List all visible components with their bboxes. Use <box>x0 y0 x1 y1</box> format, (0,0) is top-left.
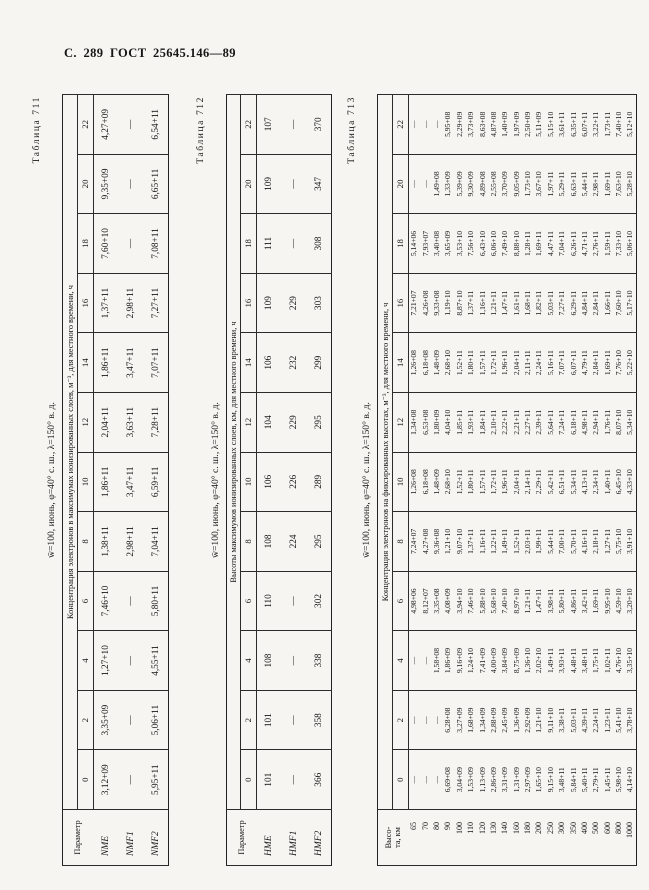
value-cell: 1,52+11 <box>454 333 465 393</box>
table-row: 5002,79+112,24+111,75+111,69+112,18+112,… <box>591 95 602 866</box>
time-header-cell: 14 <box>393 333 409 393</box>
value-cell: 1,86+09 <box>443 631 454 691</box>
value-cell: 5,16+11 <box>545 333 556 393</box>
value-cell: 5,29+11 <box>557 154 568 214</box>
value-cell: 6,54+11 <box>144 95 169 155</box>
value-cell: 3,31+09 <box>500 750 511 810</box>
value-cell: 1,57+11 <box>477 452 488 512</box>
value-cell: 7,60+10 <box>614 273 625 333</box>
value-cell: — <box>282 571 307 631</box>
value-cell: 3,35+10 <box>625 631 636 691</box>
value-cell: 1,68+09 <box>465 690 476 750</box>
value-cell: 5,70+11 <box>568 512 579 572</box>
value-cell: 1,65+10 <box>534 750 545 810</box>
value-cell: 2,39+11 <box>534 392 545 452</box>
value-cell: 101 <box>257 750 282 810</box>
value-cell: 5,03+11 <box>568 690 579 750</box>
value-cell: — <box>119 631 144 691</box>
value-cell: 2,10+11 <box>488 392 499 452</box>
value-cell: — <box>431 95 442 155</box>
value-cell: 5,34+10 <box>625 392 636 452</box>
value-cell: 5,41+10 <box>614 690 625 750</box>
row-label: 500 <box>591 810 602 866</box>
time-header-cell: 0 <box>78 750 94 810</box>
value-cell: 2,04+11 <box>511 333 522 393</box>
value-cell: 1,49+11 <box>545 631 556 691</box>
table-711-caption: Таблица 711 <box>32 96 42 866</box>
value-cell: 8,97+10 <box>511 571 522 631</box>
value-cell: 3,48+11 <box>557 750 568 810</box>
value-cell: 370 <box>307 95 332 155</box>
value-cell: 4,79+11 <box>579 333 590 393</box>
value-cell: — <box>282 95 307 155</box>
value-cell: 2,98+11 <box>119 273 144 333</box>
table-712-rotated-band: Таблица 712 w̄=100, июнь, φ=40° с. ш., λ… <box>196 94 332 866</box>
value-cell: 1,27+11 <box>602 512 613 572</box>
value-cell: 7,27+11 <box>144 273 169 333</box>
value-cell: 7,63+10 <box>614 154 625 214</box>
time-header-cell: 16 <box>393 273 409 333</box>
value-cell: 5,28+10 <box>625 154 636 214</box>
value-cell: 3,78+10 <box>625 690 636 750</box>
value-cell: 6,07+11 <box>579 95 590 155</box>
value-cell: 5,03+11 <box>545 273 556 333</box>
value-cell: 1,22+11 <box>488 512 499 572</box>
table-row: NME3,12+093,35+091,27+107,46+101,38+111,… <box>94 95 119 866</box>
row-label: 110 <box>465 810 476 866</box>
value-cell: 1,16+11 <box>477 512 488 572</box>
value-cell: — <box>282 750 307 810</box>
value-cell: 2,88+09 <box>488 690 499 750</box>
table-712-title: w̄=100, июнь, φ=40° с. ш., λ=150° в. д. <box>210 94 221 866</box>
value-cell: 3,84+09 <box>500 631 511 691</box>
value-cell: — <box>409 750 420 810</box>
value-cell: 2,29+11 <box>534 452 545 512</box>
value-cell: 7,60+10 <box>94 214 119 274</box>
time-header-cell: 4 <box>393 631 409 691</box>
row-label: 100 <box>454 810 465 866</box>
value-cell: 8,75+09 <box>511 631 522 691</box>
value-cell: 1,73+11 <box>602 95 613 155</box>
time-header-cell: 18 <box>241 214 257 274</box>
value-cell: 3,65+09 <box>443 214 454 274</box>
value-cell: 1,72+11 <box>488 452 499 512</box>
value-cell: 7,27+11 <box>557 273 568 333</box>
time-header-cell: 22 <box>393 95 409 155</box>
value-cell: 9,07+10 <box>454 512 465 572</box>
value-cell: 1,69+11 <box>534 214 545 274</box>
value-cell: — <box>119 214 144 274</box>
value-cell: 289 <box>307 452 332 512</box>
value-cell: 1,37+11 <box>465 273 476 333</box>
time-header-cell: 14 <box>241 333 257 393</box>
time-header-cell: 16 <box>78 273 94 333</box>
row-label: 300 <box>557 810 568 866</box>
value-cell: 5,40+11 <box>579 750 590 810</box>
row-label: NMF2 <box>144 810 169 866</box>
value-cell: 1,73+10 <box>522 154 533 214</box>
row-label: 70 <box>420 810 431 866</box>
value-cell: 6,29+11 <box>568 273 579 333</box>
value-cell: — <box>119 95 144 155</box>
table-row: 1201,13+091,34+097,41+095,88+101,16+111,… <box>477 95 488 866</box>
value-cell: 4,39+11 <box>579 690 590 750</box>
value-cell: 1,58+08 <box>431 631 442 691</box>
value-cell: 7,07+11 <box>144 333 169 393</box>
stub-header: Параметр <box>227 810 257 866</box>
value-cell: 6,59+11 <box>144 452 169 512</box>
table-row: 2001,65+101,21+102,02+101,47+111,99+112,… <box>534 95 545 866</box>
value-cell: 6,45+10 <box>614 452 625 512</box>
row-label: 140 <box>500 810 511 866</box>
value-cell: 2,27+11 <box>522 392 533 452</box>
value-cell: 8,88+10 <box>511 214 522 274</box>
value-cell: — <box>282 214 307 274</box>
value-cell: 9,05+09 <box>511 154 522 214</box>
value-cell: 1,13+09 <box>477 750 488 810</box>
value-cell: 109 <box>257 273 282 333</box>
time-header-cell: 8 <box>78 512 94 572</box>
value-cell: 7,76+10 <box>614 333 625 393</box>
value-cell: 229 <box>282 273 307 333</box>
value-cell: 9,35+09 <box>94 154 119 214</box>
value-cell: 9,33+08 <box>431 273 442 333</box>
value-cell: 3,47+11 <box>119 452 144 512</box>
table-row: 1101,53+091,68+091,24+107,46+101,37+111,… <box>465 95 476 866</box>
value-cell: 8,63+08 <box>477 95 488 155</box>
stub-header: Параметр <box>63 810 94 866</box>
value-cell: 101 <box>257 690 282 750</box>
value-cell: 6,43+10 <box>477 214 488 274</box>
value-cell: 3,12+09 <box>94 750 119 810</box>
row-label: 800 <box>614 810 625 866</box>
row-label: 65 <box>409 810 420 866</box>
row-label: 160 <box>511 810 522 866</box>
value-cell: — <box>431 750 442 810</box>
value-cell: 4,08+09 <box>443 571 454 631</box>
span-header: Концентрация электронов в максимумах ион… <box>63 95 78 810</box>
value-cell: — <box>282 690 307 750</box>
value-cell: 110 <box>257 571 282 631</box>
value-cell: 1,31+09 <box>511 750 522 810</box>
table-row: 1601,31+091,36+098,75+098,97+101,52+112,… <box>511 95 522 866</box>
value-cell: 4,13+11 <box>579 452 590 512</box>
value-cell: 3,53+10 <box>454 214 465 274</box>
time-header-cell: 6 <box>241 571 257 631</box>
table-row: 6001,45+111,23+111,02+119,95+101,27+111,… <box>602 95 613 866</box>
value-cell: 9,15+10 <box>545 750 556 810</box>
value-cell: 3,93+11 <box>557 631 568 691</box>
value-cell: 1,26+08 <box>409 333 420 393</box>
row-label: 1000 <box>625 810 636 866</box>
value-cell: 2,29+09 <box>454 95 465 155</box>
value-cell: 2,94+11 <box>591 392 602 452</box>
value-cell: 1,86+11 <box>94 333 119 393</box>
table-row: 1802,97+092,92+091,36+101,21+112,03+112,… <box>522 95 533 866</box>
value-cell: 232 <box>282 333 307 393</box>
value-cell: 9,95+10 <box>602 571 613 631</box>
value-cell: 106 <box>257 333 282 393</box>
table-row: 70———8,12+074,27+086,18+086,53+086,18+08… <box>420 95 431 866</box>
table-712: ПараметрВысоты максимумов ионизированных… <box>226 94 332 866</box>
value-cell: 5,17+10 <box>625 273 636 333</box>
value-cell: 1,21+11 <box>488 273 499 333</box>
table-row: HMF2366358338302295289295299303308347370 <box>307 95 332 866</box>
value-cell: 1,36+10 <box>522 631 533 691</box>
value-cell: 6,26+11 <box>568 214 579 274</box>
value-cell: 338 <box>307 631 332 691</box>
value-cell: 5,84+11 <box>568 750 579 810</box>
value-cell: 4,27+08 <box>420 512 431 572</box>
value-cell: 5,95+08 <box>443 95 454 155</box>
value-cell: 4,26+08 <box>420 273 431 333</box>
value-cell: 308 <box>307 214 332 274</box>
value-cell: 7,28+11 <box>144 392 169 452</box>
value-cell: 7,08+11 <box>144 214 169 274</box>
value-cell: 4,76+10 <box>614 631 625 691</box>
value-cell: — <box>282 631 307 691</box>
value-cell: 295 <box>307 392 332 452</box>
value-cell: 2,04+11 <box>94 392 119 452</box>
value-cell: — <box>409 631 420 691</box>
value-cell: 5,44+11 <box>545 512 556 572</box>
value-cell: 6,18+08 <box>420 452 431 512</box>
value-cell: 3,20+10 <box>625 571 636 631</box>
value-cell: 226 <box>282 452 307 512</box>
value-cell: 1,97+09 <box>511 95 522 155</box>
value-cell: 1,19+10 <box>443 273 454 333</box>
time-header-cell: 12 <box>241 392 257 452</box>
value-cell: 5,22+10 <box>625 333 636 393</box>
value-cell: 3,38+11 <box>557 690 568 750</box>
value-cell: 107 <box>257 95 282 155</box>
table-row: 906,69+086,28+081,86+094,08+091,21+102,6… <box>443 95 454 866</box>
value-cell: 1,40+11 <box>602 452 613 512</box>
value-cell: — <box>420 631 431 691</box>
value-cell: 4,14+10 <box>625 750 636 810</box>
value-cell: 1,96+11 <box>500 452 511 512</box>
value-cell: 4,55+11 <box>144 631 169 691</box>
time-header-cell: 10 <box>393 452 409 512</box>
value-cell: 7,49+10 <box>500 214 511 274</box>
row-label: 250 <box>545 810 556 866</box>
value-cell: 4,00+09 <box>488 631 499 691</box>
time-header-cell: 4 <box>78 631 94 691</box>
value-cell: 4,48+11 <box>568 631 579 691</box>
value-cell: 2,18+11 <box>591 512 602 572</box>
value-cell: 1,02+11 <box>602 631 613 691</box>
value-cell: — <box>409 154 420 214</box>
value-cell: 1,53+09 <box>465 750 476 810</box>
span-header: Концентрация электронов на фиксированных… <box>378 95 393 810</box>
row-label: HME <box>257 810 282 866</box>
value-cell: 4,98+11 <box>579 392 590 452</box>
value-cell: 1,97+11 <box>545 154 556 214</box>
value-cell: — <box>409 690 420 750</box>
value-cell: 8,87+10 <box>454 273 465 333</box>
table-711: ПараметрКонцентрация электронов в максим… <box>62 94 169 866</box>
value-cell: 7,40+10 <box>500 571 511 631</box>
time-header-cell: 22 <box>241 95 257 155</box>
row-label: NMF1 <box>119 810 144 866</box>
value-cell: 1,27+10 <box>94 631 119 691</box>
value-cell: 6,18+11 <box>568 392 579 452</box>
value-cell: 3,70+09 <box>500 154 511 214</box>
value-cell: 4,27+09 <box>94 95 119 155</box>
value-cell: 4,47+11 <box>545 214 556 274</box>
value-cell: 5,95+11 <box>144 750 169 810</box>
value-cell: 358 <box>307 690 332 750</box>
value-cell: 5,42+11 <box>545 452 556 512</box>
row-label: 350 <box>568 810 579 866</box>
value-cell: 1,34+09 <box>477 690 488 750</box>
value-cell: 6,18+08 <box>420 333 431 393</box>
scanned-page: С. 289 ГОСТ 25645.146—89 Таблица 711 w̄=… <box>0 0 649 890</box>
value-cell: 9,36+08 <box>431 512 442 572</box>
value-cell: 111 <box>257 214 282 274</box>
table-row: 1302,86+092,88+094,00+095,68+101,22+111,… <box>488 95 499 866</box>
table-712-caption: Таблица 712 <box>196 96 206 866</box>
value-cell: 1,80+11 <box>465 452 476 512</box>
value-cell: 5,39+09 <box>454 154 465 214</box>
value-cell: 2,24+11 <box>591 690 602 750</box>
value-cell: 5,98+10 <box>614 750 625 810</box>
table-row: 3003,48+113,38+113,93+115,80+117,00+116,… <box>557 95 568 866</box>
value-cell: 1,37+11 <box>465 512 476 572</box>
value-cell: 4,33+10 <box>625 452 636 512</box>
value-cell: 5,12+10 <box>625 95 636 155</box>
value-cell: 108 <box>257 512 282 572</box>
value-cell: — <box>409 95 420 155</box>
value-cell: 6,51+11 <box>557 452 568 512</box>
value-cell: 2,98+11 <box>591 154 602 214</box>
value-cell: 1,49+11 <box>500 512 511 572</box>
table-row: 1003,04+093,27+099,16+093,94+109,07+101,… <box>454 95 465 866</box>
table-row: HMF1————224226229232229——— <box>282 95 307 866</box>
value-cell: 7,93+07 <box>420 214 431 274</box>
value-cell: 1,96+11 <box>500 333 511 393</box>
value-cell: 7,00+11 <box>557 512 568 572</box>
value-cell: 2,45+09 <box>500 690 511 750</box>
table-row: 10004,14+103,78+103,35+103,20+103,91+104… <box>625 95 636 866</box>
value-cell: 9,11+10 <box>545 690 556 750</box>
value-cell: 5,34+11 <box>568 452 579 512</box>
value-cell: 4,04+10 <box>443 392 454 452</box>
value-cell: 1,93+11 <box>465 392 476 452</box>
value-cell: 2,68+10 <box>443 452 454 512</box>
value-cell: 5,75+10 <box>614 512 625 572</box>
value-cell: 1,76+11 <box>602 392 613 452</box>
value-cell: 7,21+07 <box>409 273 420 333</box>
table-row: 65———4,98+067,24+071,26+081,34+081,26+08… <box>409 95 420 866</box>
value-cell: 7,04+11 <box>557 214 568 274</box>
value-cell: 1,69+11 <box>602 333 613 393</box>
value-cell: 108 <box>257 631 282 691</box>
time-header-cell: 2 <box>241 690 257 750</box>
value-cell: 1,49+08 <box>431 154 442 214</box>
value-cell: 7,40+10 <box>614 95 625 155</box>
value-cell: 7,33+10 <box>614 214 625 274</box>
table-row: 4005,40+114,39+113,48+113,42+114,16+114,… <box>579 95 590 866</box>
value-cell: 2,68+10 <box>443 333 454 393</box>
value-cell: 1,68+11 <box>522 273 533 333</box>
value-cell: 7,46+10 <box>94 571 119 631</box>
value-cell: 6,69+08 <box>443 750 454 810</box>
value-cell: 3,98+11 <box>545 571 556 631</box>
table-row: 3505,84+115,03+114,48+114,86+115,70+115,… <box>568 95 579 866</box>
table-row: 1403,31+092,45+093,84+097,40+101,49+111,… <box>500 95 511 866</box>
row-label: 600 <box>602 810 613 866</box>
value-cell: 1,82+11 <box>534 273 545 333</box>
value-cell: 2,03+11 <box>522 512 533 572</box>
table-row: NMF25,95+115,06+114,55+115,80+117,04+116… <box>144 95 169 866</box>
value-cell: 5,06+10 <box>625 214 636 274</box>
value-cell: 6,06+10 <box>488 214 499 274</box>
value-cell: 6,53+08 <box>420 392 431 452</box>
value-cell: 302 <box>307 571 332 631</box>
value-cell: — <box>420 690 431 750</box>
value-cell: 7,56+10 <box>465 214 476 274</box>
value-cell: 2,21+11 <box>511 392 522 452</box>
table-711-rotated-band: Таблица 711 w̄=100, июнь, φ=40° с. ш., λ… <box>32 94 169 866</box>
row-label: 90 <box>443 810 454 866</box>
value-cell: 1,99+11 <box>534 512 545 572</box>
value-cell: 1,61+11 <box>511 273 522 333</box>
value-cell: 2,97+09 <box>522 750 533 810</box>
value-cell: 9,16+09 <box>454 631 465 691</box>
value-cell: 1,69+11 <box>591 571 602 631</box>
value-cell: 4,16+11 <box>579 512 590 572</box>
time-header-cell: 22 <box>78 95 94 155</box>
time-header-cell: 4 <box>241 631 257 691</box>
page-header: С. 289 ГОСТ 25645.146—89 <box>64 46 236 61</box>
value-cell: 7,04+11 <box>144 512 169 572</box>
value-cell: 5,88+10 <box>477 571 488 631</box>
value-cell: 6,07+11 <box>568 333 579 393</box>
value-cell: 4,84+11 <box>579 273 590 333</box>
time-header-cell: 6 <box>78 571 94 631</box>
value-cell: 2,84+11 <box>591 273 602 333</box>
value-cell: 1,26+08 <box>409 452 420 512</box>
value-cell: — <box>119 154 144 214</box>
table-row: HME101101108110108106104106109111109107 <box>257 95 282 866</box>
time-header-cell: 0 <box>241 750 257 810</box>
value-cell: 5,06+11 <box>144 690 169 750</box>
value-cell: 8,07+10 <box>614 392 625 452</box>
time-header-cell: 16 <box>241 273 257 333</box>
row-label: 120 <box>477 810 488 866</box>
value-cell: 1,59+11 <box>602 214 613 274</box>
value-cell: 1,48+09 <box>431 452 442 512</box>
value-cell: 224 <box>282 512 307 572</box>
value-cell: 4,87+08 <box>488 95 499 155</box>
value-cell: 6,35+11 <box>568 95 579 155</box>
value-cell: 5,80+11 <box>144 571 169 631</box>
value-cell: 3,40+08 <box>431 214 442 274</box>
value-cell: 4,98+06 <box>409 571 420 631</box>
value-cell: 6,28+08 <box>443 690 454 750</box>
value-cell: 1,86+11 <box>94 452 119 512</box>
value-cell: 1,38+11 <box>94 512 119 572</box>
value-cell: — <box>119 750 144 810</box>
value-cell: 3,48+11 <box>579 631 590 691</box>
table-713-caption: Таблица 713 <box>347 96 357 866</box>
value-cell: 9,30+09 <box>465 154 476 214</box>
value-cell: 229 <box>282 392 307 452</box>
value-cell: 7,07+11 <box>557 333 568 393</box>
value-cell: 1,33+09 <box>443 154 454 214</box>
stub-header: Высо- та, км <box>378 810 409 866</box>
